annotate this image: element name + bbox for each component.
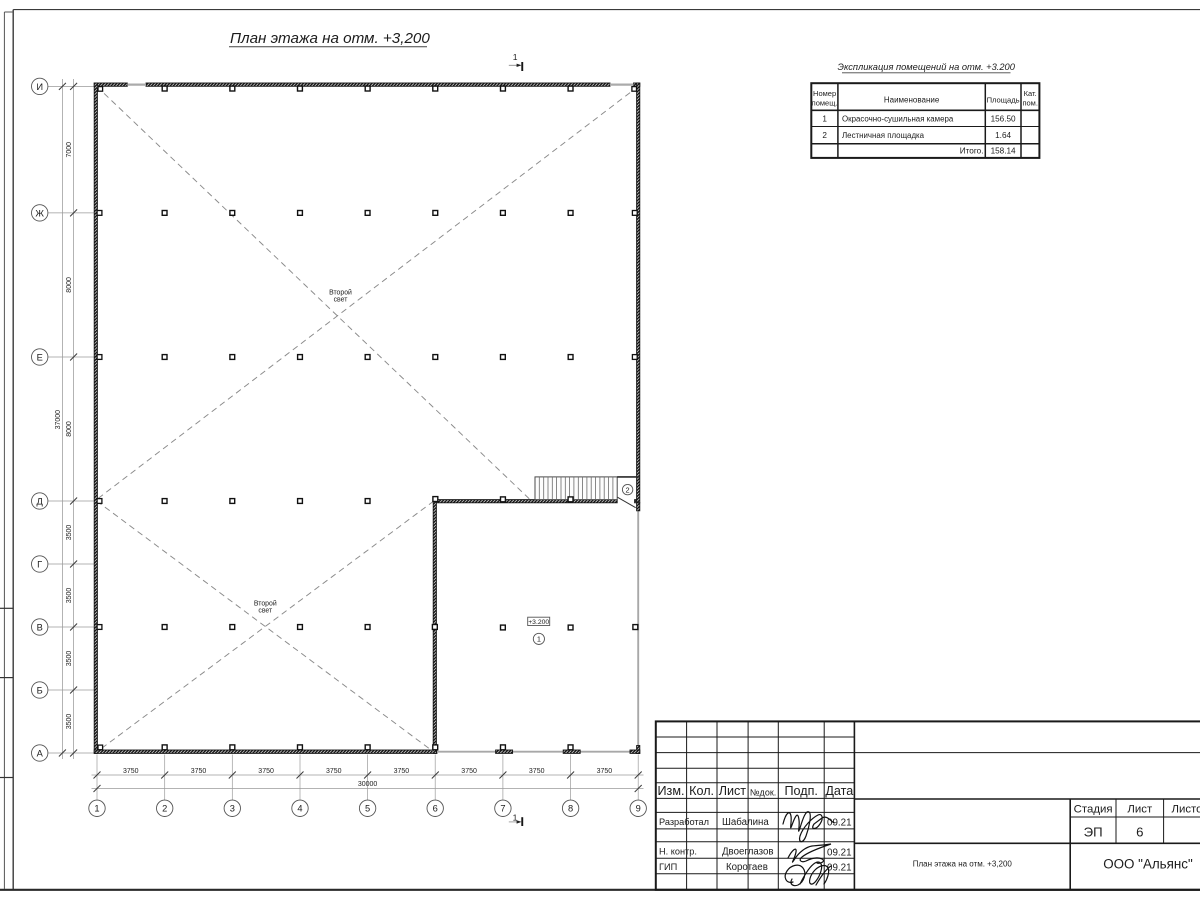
svg-text:37000: 37000 [55, 410, 62, 430]
svg-text:Дата: Дата [825, 784, 853, 798]
svg-text:Экспликация помещений на отм.: Экспликация помещений на отм. +3.200 [838, 62, 1016, 72]
svg-text:ООО "Альянс": ООО "Альянс" [1103, 857, 1193, 872]
svg-text:Кол.: Кол. [689, 784, 714, 798]
svg-text:3750: 3750 [461, 768, 477, 775]
svg-text:Лестничная площадка: Лестничная площадка [842, 131, 925, 140]
svg-text:свет: свет [258, 608, 273, 615]
svg-text:09.21: 09.21 [827, 818, 852, 829]
svg-text:Н. контр.: Н. контр. [659, 847, 697, 857]
svg-text:Площадь: Площадь [987, 96, 1020, 105]
svg-text:Д: Д [37, 496, 44, 506]
svg-text:8: 8 [568, 804, 573, 814]
svg-text:Подп.: Подп. [784, 784, 817, 798]
svg-text:Коротаев: Коротаев [726, 862, 768, 873]
svg-text:6: 6 [1136, 825, 1143, 840]
svg-text:Кат.: Кат. [1024, 89, 1037, 98]
svg-text:В: В [37, 622, 43, 632]
svg-text:1: 1 [822, 114, 827, 123]
svg-text:Г: Г [37, 559, 42, 569]
svg-text:План этажа на отм. +3,200: План этажа на отм. +3,200 [913, 859, 1013, 868]
svg-text:И: И [36, 82, 43, 92]
svg-text:8000: 8000 [66, 421, 73, 437]
svg-text:Итого.: Итого. [960, 147, 984, 156]
svg-text:3500: 3500 [66, 525, 73, 541]
svg-text:Ж: Ж [35, 208, 44, 218]
svg-text:Листов: Листов [1171, 803, 1200, 815]
svg-text:156.50: 156.50 [991, 114, 1016, 123]
svg-text:3500: 3500 [66, 651, 73, 667]
svg-text:Разработал: Разработал [659, 817, 709, 827]
svg-text:Второй: Второй [329, 289, 352, 297]
svg-text:3750: 3750 [394, 768, 410, 775]
svg-text:158.14: 158.14 [991, 147, 1016, 156]
svg-text:2: 2 [822, 131, 827, 140]
svg-text:+3.200: +3.200 [528, 619, 549, 626]
svg-text:Изм.: Изм. [658, 784, 685, 798]
svg-text:1.64: 1.64 [995, 131, 1011, 140]
svg-text:4: 4 [297, 804, 302, 814]
svg-text:2: 2 [162, 804, 167, 814]
svg-text:А: А [37, 748, 44, 758]
svg-text:3: 3 [230, 804, 235, 814]
svg-text:Номер: Номер [813, 89, 836, 98]
svg-text:5: 5 [365, 804, 370, 814]
svg-text:09.21: 09.21 [827, 847, 852, 858]
svg-text:3500: 3500 [66, 588, 73, 604]
svg-text:09.21: 09.21 [827, 863, 852, 874]
svg-text:Стадия: Стадия [1074, 803, 1113, 815]
svg-text:3750: 3750 [191, 768, 207, 775]
svg-text:3500: 3500 [66, 714, 73, 730]
svg-text:Наименование: Наименование [884, 96, 940, 105]
svg-text:Б: Б [37, 685, 43, 695]
svg-text:Окрасочно-сушильная камера: Окрасочно-сушильная камера [842, 114, 954, 123]
svg-text:30000: 30000 [358, 781, 378, 788]
svg-text:свет: свет [334, 297, 349, 304]
svg-text:1: 1 [513, 52, 518, 62]
svg-text:8000: 8000 [66, 277, 73, 293]
svg-text:3750: 3750 [123, 768, 139, 775]
svg-text:Второй: Второй [254, 600, 277, 608]
svg-text:План этажа на отм. +3,200: План этажа на отм. +3,200 [230, 30, 430, 47]
svg-text:Лист: Лист [1127, 803, 1153, 815]
svg-text:1: 1 [537, 635, 541, 644]
svg-text:Шабалина: Шабалина [722, 817, 769, 828]
svg-text:ЭП: ЭП [1084, 825, 1103, 840]
svg-text:2: 2 [626, 485, 630, 494]
svg-text:3750: 3750 [529, 768, 545, 775]
svg-text:помещ.: помещ. [812, 99, 838, 108]
svg-text:6: 6 [433, 804, 438, 814]
svg-text:Лист: Лист [719, 784, 747, 798]
svg-text:7000: 7000 [66, 142, 73, 158]
svg-text:9: 9 [636, 804, 641, 814]
svg-text:3750: 3750 [258, 768, 274, 775]
svg-text:3750: 3750 [326, 768, 342, 775]
svg-text:пом.: пом. [1022, 99, 1037, 108]
svg-text:ГИП: ГИП [659, 862, 677, 872]
svg-text:7: 7 [500, 804, 505, 814]
svg-text:Е: Е [37, 352, 43, 362]
svg-text:Двоеглазов: Двоеглазов [722, 847, 774, 858]
svg-text:3750: 3750 [597, 768, 613, 775]
svg-text:1: 1 [94, 804, 99, 814]
svg-text:№док.: №док. [750, 788, 776, 798]
